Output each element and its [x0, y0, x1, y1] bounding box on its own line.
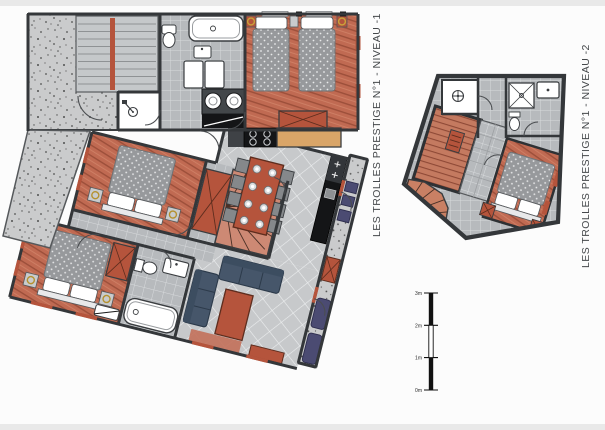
sink	[205, 61, 224, 88]
bathtub	[189, 16, 243, 41]
niveau1-title: LES TROLLES PRESTIGE N°1 - NIVEAU -1	[366, 8, 388, 242]
frame-strip-bottom	[0, 424, 605, 430]
bedroom-1	[245, 12, 361, 131]
scale-label-0m: 0m	[415, 388, 422, 394]
nightstand	[290, 16, 298, 27]
sink	[184, 61, 203, 88]
nightstand	[23, 272, 39, 288]
scale-label-1m: 1m	[415, 356, 422, 362]
small-sink	[194, 46, 211, 58]
toilet	[509, 112, 520, 131]
frame-strip-top	[0, 0, 605, 6]
floorplan-canvas: 3m 2m 1m 0m	[0, 0, 605, 430]
shower-room	[118, 92, 160, 130]
balcony-table	[337, 209, 351, 223]
kitchen-sink	[324, 188, 336, 199]
bathroom-1	[160, 14, 246, 130]
nightstand	[99, 291, 115, 307]
main-staircase	[76, 16, 158, 92]
niveau1-plan	[3, 12, 368, 374]
nightstand	[87, 187, 103, 203]
stair-handrail	[110, 18, 115, 90]
niveau2-shower-room	[506, 80, 560, 136]
niveau2-title: LES TROLLES PRESTIGE N°1 - NIVEAU -2	[575, 48, 597, 264]
toilet	[162, 25, 176, 48]
vanity-double-basin	[202, 89, 245, 114]
twin-bed	[299, 17, 335, 91]
cellar-room	[442, 80, 478, 114]
wardrobe-bedroom1	[279, 111, 327, 128]
twin-bed	[253, 17, 289, 91]
floorplan-sheet: { "sheet": { "background": "#fcfcfc", "f…	[0, 0, 605, 430]
scale-label-3m: 3m	[415, 291, 422, 297]
scale-label-2m: 2m	[415, 323, 422, 329]
nightstand	[165, 207, 181, 223]
scale-bar: 3m 2m 1m 0m	[415, 291, 438, 394]
niveau2-plan	[397, 76, 569, 260]
